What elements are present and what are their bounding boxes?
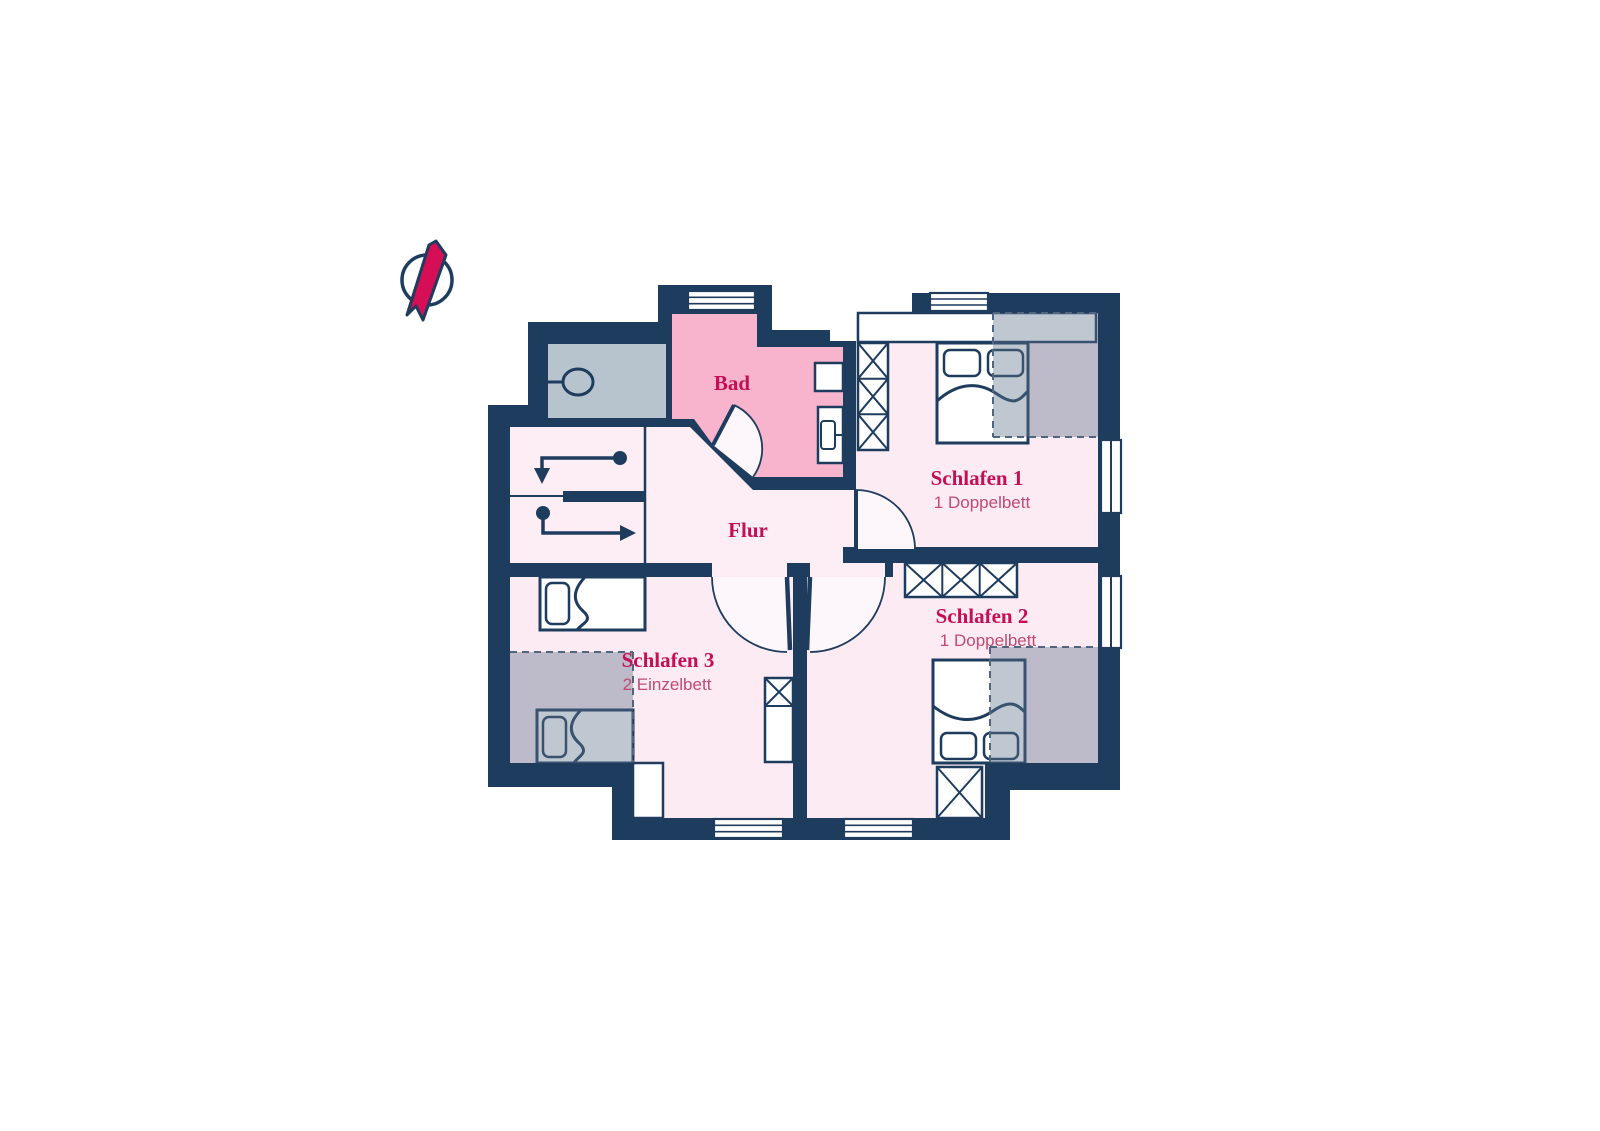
bath-fixtures — [815, 363, 843, 463]
corner-cabinet — [633, 763, 663, 818]
floor-plan: Bad Flur Schlafen 1 1 Doppelbett Schlafe… — [0, 0, 1600, 1131]
label-schlafen2: Schlafen 2 — [936, 604, 1029, 628]
wardrobe-x-icon — [937, 767, 982, 818]
window-schlafen3-bottom — [714, 819, 783, 838]
door-leaf — [807, 577, 810, 650]
sink-icon — [815, 363, 843, 391]
label-schlafen3: Schlafen 3 — [622, 648, 715, 672]
single-bed-icon — [540, 577, 645, 630]
label-schlafen1: Schlafen 1 — [931, 466, 1024, 490]
sloped-zone-schlafen2 — [990, 647, 1098, 763]
label-schlafen3-beds: 2 Einzelbett — [623, 675, 712, 694]
window-schlafen1-top — [930, 293, 988, 311]
door-leaf — [787, 577, 790, 650]
label-schlafen2-beds: 1 Doppelbett — [940, 631, 1037, 650]
pillow — [944, 350, 980, 376]
label-bad: Bad — [714, 371, 751, 395]
pillow — [941, 733, 976, 759]
wardrobe-icon — [858, 343, 888, 450]
label-schlafen1-beds: 1 Doppelbett — [934, 493, 1031, 512]
label-flur: Flur — [728, 518, 768, 542]
pillow — [546, 583, 569, 624]
window-bad-top — [688, 291, 755, 310]
wardrobe-icon — [905, 563, 1017, 597]
compass-needle-icon — [407, 241, 446, 320]
sloped-zone-schlafen3 — [510, 652, 633, 763]
floor-plan-page: Bad Flur Schlafen 1 1 Doppelbett Schlafe… — [0, 0, 1600, 1131]
room-utility — [548, 344, 666, 418]
north-arrow-icon — [402, 241, 452, 320]
toilet-icon — [818, 407, 843, 463]
sloped-zone-schlafen1 — [993, 313, 1098, 437]
wardrobe-x-icon — [765, 678, 793, 762]
window-schlafen2-bottom — [844, 819, 913, 838]
stair-landing-wall — [563, 491, 645, 502]
window-schlafen1-right — [1101, 440, 1121, 513]
window-schlafen2-right — [1101, 576, 1121, 648]
door-opening-schlafen2 — [810, 563, 885, 577]
door-opening-schlafen3 — [712, 563, 787, 577]
